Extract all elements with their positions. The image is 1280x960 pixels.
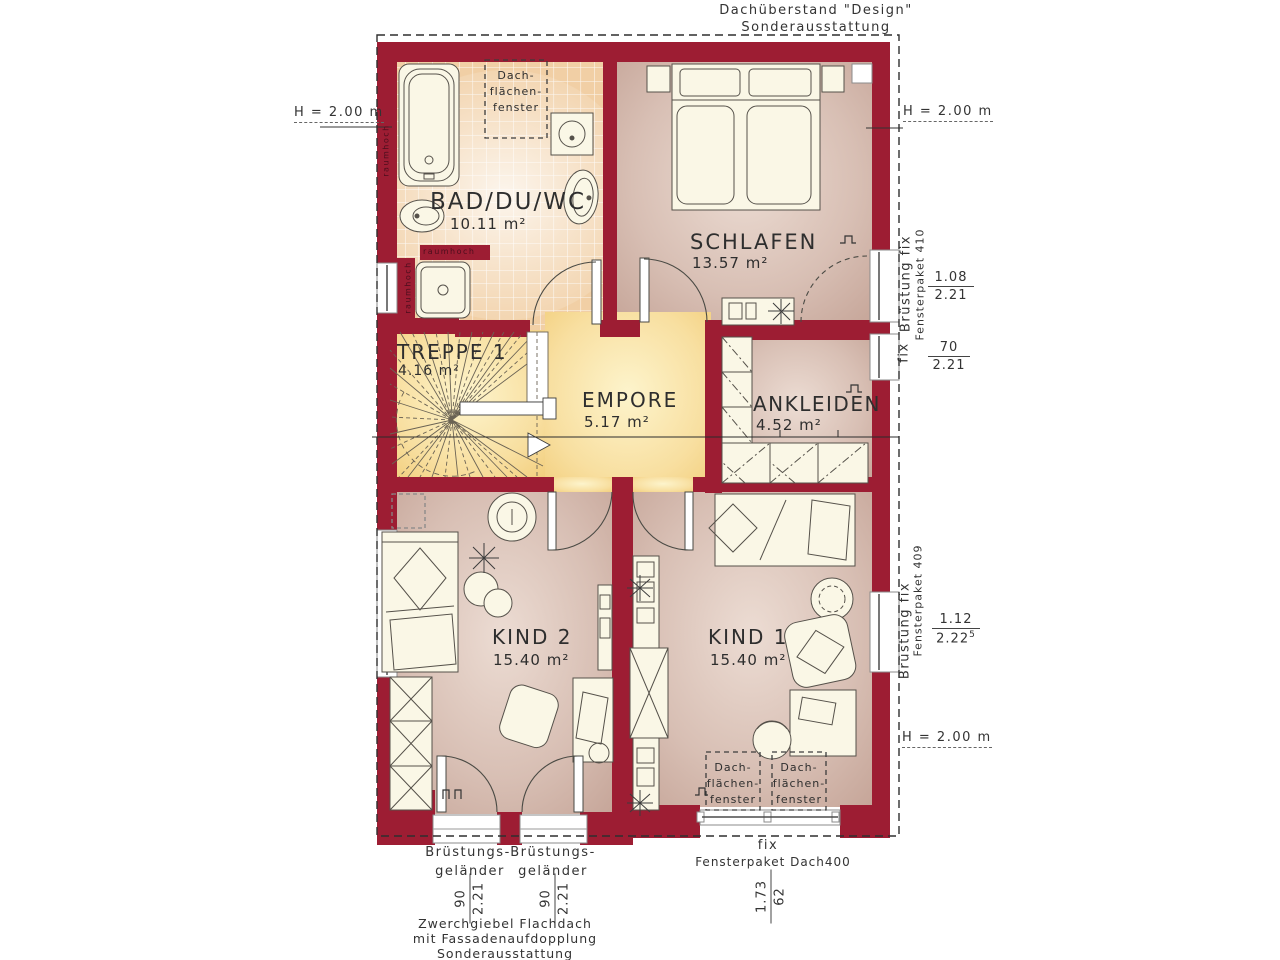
- railing-label-2-line1: Brüstungs-: [493, 845, 613, 860]
- floor-plan-drawing: [0, 0, 1280, 960]
- roof-overhang-label-line1: Dachüberstand "Design": [716, 3, 916, 18]
- dach400-dimension: 1.73 62: [755, 870, 788, 924]
- height-label-right-top: H = 2.00 m: [903, 104, 993, 122]
- paket409-dimension: 1.12 2.225: [932, 612, 980, 646]
- room-area-kind2: 15.40 m²: [493, 651, 569, 669]
- window-paket410: [870, 250, 899, 322]
- zwerchgiebel-note-line1: Zwerchgiebel Flachdach: [385, 916, 625, 931]
- zwerchgiebel-note-line3: Sonderausstattung: [385, 946, 625, 960]
- child1-bed: [709, 494, 855, 566]
- paket410-dimension: 1.08 2.21: [928, 270, 974, 303]
- stair-balustrade: [527, 332, 548, 402]
- child2-bed: [382, 532, 458, 672]
- roof-window-label-child1-b: Dach- flächen- fenster: [749, 760, 849, 808]
- raumhoch-label-2: raumhoch: [423, 247, 473, 256]
- roof-window-label-bath: Dach- flächen- fenster: [466, 68, 566, 116]
- fix-label-right: fix: [897, 333, 912, 373]
- wall-niche: [852, 64, 872, 83]
- room-area-kind1: 15.40 m²: [710, 651, 786, 669]
- window-paket409: [870, 592, 899, 672]
- child2-armchair: [488, 493, 536, 541]
- room-area-schlafen: 13.57 m²: [692, 254, 768, 272]
- room-area-bad: 10.11 m²: [450, 215, 526, 233]
- bathtub: [399, 64, 459, 186]
- roof-overhang-label-line2: Sonderausstattung: [716, 20, 916, 35]
- nightstand: [822, 66, 844, 92]
- paket410-bruestung-label: Brüstung fix: [899, 224, 914, 344]
- room-area-ankleiden: 4.52 m²: [756, 416, 822, 434]
- child2-wardrobe: [390, 677, 432, 810]
- room-label-ankleiden: ANKLEIDEN: [753, 392, 881, 416]
- double-bed: [647, 64, 844, 210]
- raumhoch-label-1: raumhoch: [382, 123, 391, 179]
- paket409-bruestung-label: Brüstung fix: [898, 571, 913, 691]
- room-label-empore: EMPORE: [582, 388, 678, 412]
- floor-plan-page: Dachüberstand "Design" Sonderausstattung…: [0, 0, 1280, 960]
- room-area-treppe: 4.16 m²: [398, 363, 460, 379]
- stair-handrail: [460, 402, 552, 415]
- room-label-kind1: KIND 1: [708, 625, 788, 649]
- nightstand: [647, 66, 670, 92]
- zwerchgiebel-note-line2: mit Fassadenaufdopplung: [385, 931, 625, 946]
- fix70-dimension: 70 2.21: [928, 340, 970, 373]
- child1-armchair: [782, 612, 858, 690]
- bedroom-sideboard: [722, 298, 794, 325]
- paket409-product-label: Fensterpaket 409: [912, 541, 925, 661]
- shower: [416, 262, 470, 318]
- room-label-schlafen: SCHLAFEN: [690, 230, 817, 254]
- room-label-bad: BAD/DU/WC: [408, 189, 608, 215]
- raumhoch-label-3: raumhoch: [404, 260, 413, 316]
- room-label-kind2: KIND 2: [492, 625, 572, 649]
- vanity-basin: [551, 113, 593, 155]
- paket410-product-label: Fensterpaket 410: [914, 225, 927, 345]
- height-label-right-bottom: H = 2.00 m: [902, 730, 992, 748]
- dach400-fix-label: fix: [738, 838, 798, 853]
- room-area-empore: 5.17 m²: [584, 413, 650, 431]
- height-label-left: H = 2.00 m: [294, 105, 384, 123]
- dach400-product-label: Fensterpaket Dach400: [673, 855, 873, 869]
- window-fix70: [870, 334, 899, 380]
- child1-ball-chair: [811, 578, 853, 620]
- room-label-treppe: TREPPE 1: [397, 340, 508, 364]
